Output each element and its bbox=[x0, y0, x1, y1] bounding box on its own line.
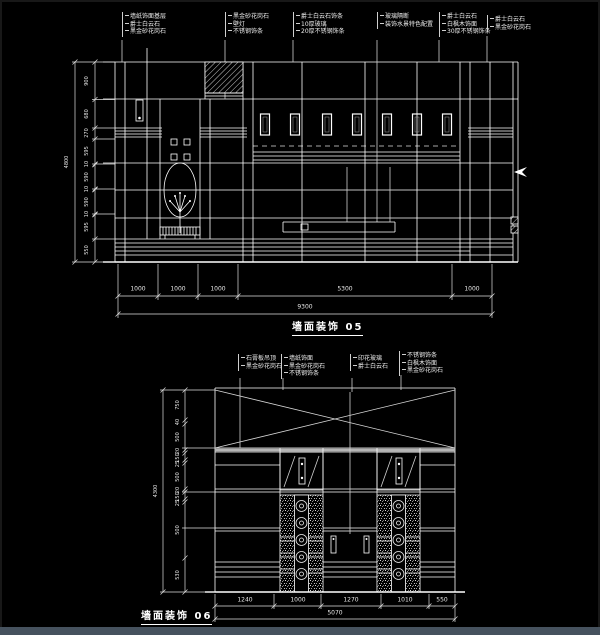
dim-total-label: 9300 bbox=[297, 304, 312, 311]
dim-total-label: 4800 bbox=[64, 156, 70, 169]
material-label-group: 爵士白云石饰条 10厚玻璃 20厚不锈钢饰条 bbox=[293, 12, 345, 37]
material-label-line: 黑金砂花岗石 bbox=[228, 13, 269, 21]
dim-label: 25 bbox=[175, 461, 181, 467]
wall-lamp bbox=[136, 100, 143, 121]
material-label-group: 墙纸饰面基层 爵士白云石 黑金砂花岗石 bbox=[122, 12, 166, 37]
drawing-title: 墙面装饰 06 bbox=[141, 607, 212, 625]
window-slots bbox=[261, 114, 452, 135]
material-label-line: 不锈钢饰条 bbox=[284, 370, 325, 378]
plant-niche bbox=[164, 163, 196, 233]
water-feature bbox=[283, 167, 395, 232]
dim-label: 1000 bbox=[464, 286, 479, 293]
dim-label: 500 bbox=[175, 432, 181, 442]
material-label-group: 不锈钢饰条 白枫木饰面 黑金砂花岗石 bbox=[399, 351, 443, 376]
material-label-line: 爵士白云石 bbox=[490, 16, 531, 24]
material-label-line: 黑金砂花岗石 bbox=[284, 363, 325, 371]
dim-total-label: 5070 bbox=[327, 610, 342, 617]
dim-label: 550 bbox=[436, 597, 447, 604]
dim-label: 590 bbox=[84, 172, 90, 182]
material-label-line: 白枫木饰面 bbox=[442, 21, 491, 29]
material-label-line: 爵士白云石 bbox=[125, 21, 166, 29]
dim-label: 1000 bbox=[210, 286, 225, 293]
elevation-05-linework bbox=[103, 36, 527, 262]
material-label-group: 石膏板吊顶 黑金砂花岗石 bbox=[238, 354, 282, 371]
drawing-title: 墙面装饰 05 bbox=[292, 318, 363, 336]
elevation-05-dimensions bbox=[72, 60, 495, 319]
material-label-line: 30厚不锈钢饰条 bbox=[442, 28, 491, 36]
dim-label: 750 bbox=[175, 400, 181, 410]
material-label-line: 爵士白云石饰条 bbox=[296, 13, 345, 21]
elevation-06-linework bbox=[205, 375, 465, 592]
dim-label: 10 bbox=[84, 161, 90, 167]
dim-label: 5300 bbox=[337, 286, 352, 293]
material-label-line: 不锈钢饰条 bbox=[228, 28, 269, 36]
material-label-line: 墙纸饰面基层 bbox=[125, 13, 166, 21]
material-label-line: 黑金砂花岗石 bbox=[402, 367, 443, 375]
material-label-line: 玻璃隔断 bbox=[380, 13, 433, 21]
dim-label: 530 bbox=[175, 570, 181, 580]
material-label-line: 装饰水景特色配置 bbox=[380, 21, 433, 29]
material-label-line: 石膏板吊顶 bbox=[241, 355, 282, 363]
material-label-line: 20厚不锈钢饰条 bbox=[296, 28, 345, 36]
bottom-bar bbox=[0, 627, 600, 635]
material-label-line: 爵士白云石 bbox=[442, 13, 491, 21]
material-label-group: 爵士白云石 黑金砂花岗石 bbox=[487, 15, 531, 32]
dim-label: 1000 bbox=[290, 597, 305, 604]
material-label-line: 白枫木饰面 bbox=[402, 360, 443, 368]
cad-viewport: 墙纸饰面基层 爵士白云石 黑金砂花岗石 黑金砂花岗石 壁灯 不锈钢饰条 爵士白云… bbox=[0, 0, 600, 635]
dim-label: 10 bbox=[84, 211, 90, 217]
material-label-line: 印花玻璃 bbox=[353, 355, 388, 363]
material-label-line: 黑金砂花岗石 bbox=[125, 28, 166, 36]
dim-label: 1240 bbox=[237, 597, 252, 604]
dim-total-label: 4300 bbox=[153, 485, 159, 498]
material-label-group: 玻璃隔断 装饰水景特色配置 bbox=[377, 12, 433, 29]
dim-label: 25 bbox=[175, 500, 181, 506]
section-arrow-icon bbox=[514, 167, 527, 177]
material-label-line: 黑金砂花岗石 bbox=[490, 24, 531, 32]
dim-label: 1010 bbox=[397, 597, 412, 604]
dim-label: 550 bbox=[84, 245, 90, 255]
dim-label: 1270 bbox=[343, 597, 358, 604]
dim-label: 590 bbox=[84, 197, 90, 207]
material-label-line: 爵士白云石 bbox=[353, 363, 388, 371]
dim-label: 595 bbox=[84, 222, 90, 232]
dim-label: 900 bbox=[84, 76, 90, 86]
dim-label: 270 bbox=[84, 128, 90, 138]
material-label-line: 墙纸饰面 bbox=[284, 355, 325, 363]
dim-label: 40 bbox=[175, 419, 181, 425]
dim-label: 1000 bbox=[130, 286, 145, 293]
dim-label: 1000 bbox=[170, 286, 185, 293]
material-label-group: 印花玻璃 爵士白云石 bbox=[350, 354, 388, 371]
dim-label: 500 bbox=[175, 525, 181, 535]
material-label-line: 壁灯 bbox=[228, 21, 269, 29]
dim-label: 595 bbox=[84, 146, 90, 156]
dim-label: 10 bbox=[84, 186, 90, 192]
material-label-line: 黑金砂花岗石 bbox=[241, 363, 282, 371]
material-label-group: 黑金砂花岗石 壁灯 不锈钢饰条 bbox=[225, 12, 269, 37]
material-label-line: 10厚玻璃 bbox=[296, 21, 345, 29]
dim-label: 680 bbox=[84, 109, 90, 119]
material-label-group: 墙纸饰面 黑金砂花岗石 不锈钢饰条 bbox=[281, 354, 325, 379]
center-door-pulls bbox=[331, 536, 369, 553]
material-label-line: 不锈钢饰条 bbox=[402, 352, 443, 360]
material-label-group: 爵士白云石 白枫木饰面 30厚不锈钢饰条 bbox=[439, 12, 491, 37]
dim-label: 500 bbox=[175, 472, 181, 482]
